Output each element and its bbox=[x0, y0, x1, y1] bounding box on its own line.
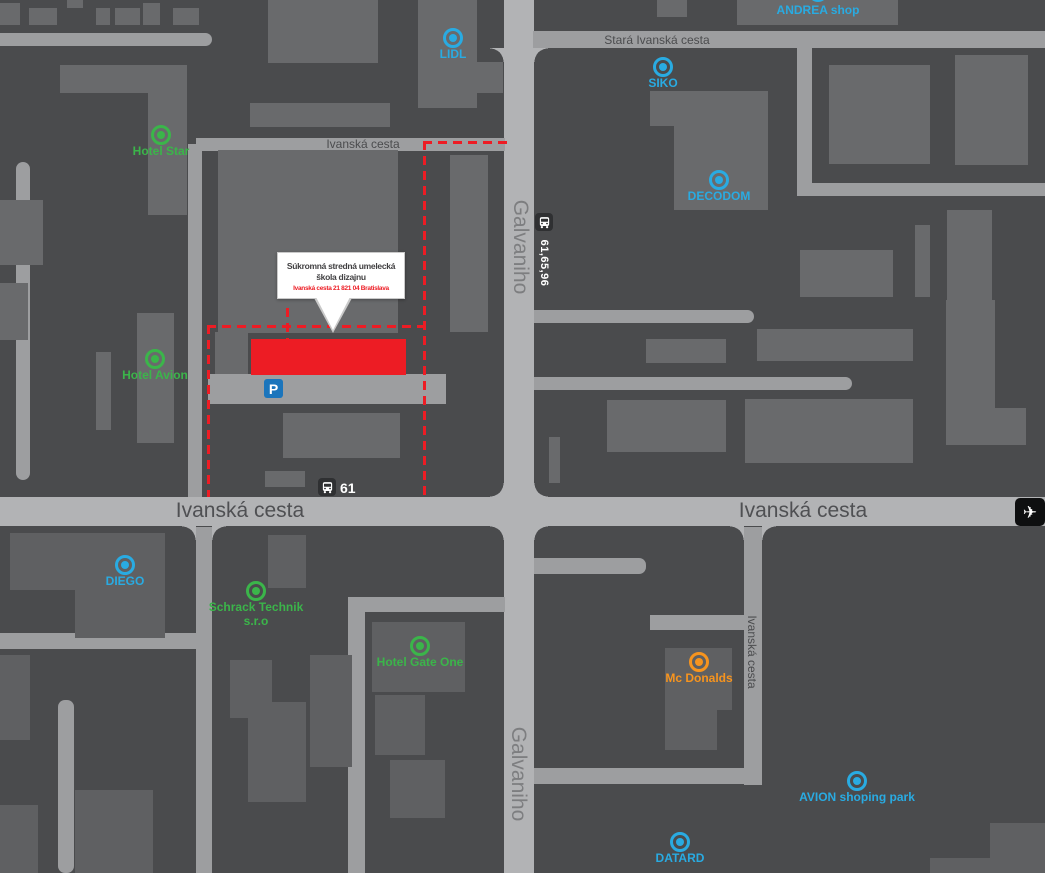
building bbox=[930, 858, 1010, 873]
road-label-ivanska-main-right: Ivanská cesta bbox=[739, 499, 867, 523]
building bbox=[800, 250, 893, 297]
building bbox=[75, 590, 165, 638]
corner-fillet bbox=[730, 526, 744, 540]
road-se-top bbox=[534, 558, 646, 574]
road-label-ivanska-main-left: Ivanská cesta bbox=[176, 499, 304, 523]
building bbox=[946, 300, 995, 445]
bus-icon bbox=[321, 481, 334, 494]
corner-fillet bbox=[490, 48, 504, 62]
building bbox=[657, 0, 687, 17]
road-school-west bbox=[188, 144, 202, 497]
building bbox=[757, 329, 913, 361]
map-canvas: Ivanská cesta Ivanská cesta Ivanská cest… bbox=[0, 0, 1045, 873]
building-schrack bbox=[268, 535, 306, 588]
school-area-boundary bbox=[423, 141, 426, 497]
building bbox=[947, 210, 992, 300]
building bbox=[283, 413, 400, 458]
road-label-galvaniho-bottom: Galvaniho bbox=[506, 727, 530, 822]
road-ne-horizontal bbox=[797, 183, 1045, 196]
building bbox=[75, 790, 153, 873]
building bbox=[646, 339, 726, 363]
school-area-boundary bbox=[207, 325, 210, 497]
map-pin-icon[interactable] bbox=[847, 771, 867, 791]
map-pin-icon[interactable] bbox=[145, 349, 165, 369]
poi-label: DIEGO bbox=[106, 574, 145, 588]
building bbox=[0, 200, 43, 265]
building-school-block bbox=[218, 150, 398, 333]
building bbox=[0, 283, 28, 340]
road-label-ivanska-side: Ivanská cesta bbox=[745, 615, 759, 688]
poi-label: ANDREA shop bbox=[777, 3, 860, 17]
map-pin-icon[interactable] bbox=[443, 28, 463, 48]
building bbox=[96, 352, 111, 430]
building bbox=[477, 62, 503, 93]
school-building-highlight bbox=[251, 339, 406, 375]
bus-stop-icon bbox=[535, 213, 553, 231]
road-sw-lane bbox=[58, 700, 74, 873]
building bbox=[215, 332, 248, 374]
poi-label: Mc Donalds bbox=[665, 671, 732, 685]
bus-stop-icon bbox=[318, 478, 336, 496]
road-east-stub-1 bbox=[534, 310, 754, 323]
school-name: Súkromná stredná umelecká škola dizajnu bbox=[281, 261, 401, 283]
corner-fillet bbox=[762, 526, 776, 540]
poi-label: Schrack Technik bbox=[209, 600, 304, 614]
bus-routes-label: 61,65,96 bbox=[538, 240, 550, 287]
building bbox=[665, 710, 717, 750]
building bbox=[29, 8, 57, 25]
building bbox=[173, 8, 199, 25]
building bbox=[265, 471, 305, 487]
school-area-boundary bbox=[423, 141, 507, 144]
building bbox=[390, 760, 445, 818]
building bbox=[450, 155, 488, 332]
poi-label: LIDL bbox=[440, 47, 467, 61]
poi-label: Hotel Avion bbox=[122, 368, 188, 382]
map-pin-icon[interactable] bbox=[653, 57, 673, 77]
poi-label-line2: s.r.o bbox=[244, 614, 269, 628]
airport-direction-icon: ✈ bbox=[1015, 498, 1045, 526]
building bbox=[96, 8, 110, 25]
building bbox=[248, 702, 306, 802]
road-sw-vertical bbox=[196, 527, 212, 873]
parking-icon: P bbox=[264, 379, 283, 398]
road-label-ivanska-top: Ivanská cesta bbox=[326, 137, 399, 151]
corner-fillet bbox=[182, 526, 196, 540]
building bbox=[268, 0, 378, 63]
building bbox=[607, 400, 726, 452]
corner-fillet bbox=[212, 526, 226, 540]
building bbox=[375, 695, 425, 755]
map-pin-icon[interactable] bbox=[670, 832, 690, 852]
building bbox=[310, 655, 352, 767]
building bbox=[250, 103, 390, 127]
map-pin-icon[interactable] bbox=[246, 581, 266, 601]
map-pin-icon[interactable] bbox=[115, 555, 135, 575]
poi-label: AVION shoping park bbox=[799, 790, 915, 804]
school-area-boundary bbox=[286, 308, 289, 339]
bus-route-label: 61 bbox=[340, 480, 356, 496]
parking-letter: P bbox=[269, 382, 278, 396]
road-se-bottom bbox=[534, 768, 762, 784]
road-top-left bbox=[0, 33, 212, 46]
building bbox=[995, 408, 1026, 445]
road-schrack-horizontal bbox=[348, 597, 505, 612]
road-label-stara-ivanska: Stará Ivanská cesta bbox=[604, 33, 709, 47]
poi-label: Hotel Star bbox=[133, 144, 190, 158]
poi-label: SIKO bbox=[648, 76, 677, 90]
building bbox=[0, 655, 30, 740]
corner-fillet bbox=[534, 48, 548, 62]
poi-label: DATARD bbox=[656, 851, 705, 865]
building bbox=[0, 3, 20, 25]
building bbox=[143, 3, 160, 25]
building bbox=[115, 8, 140, 25]
map-pin-icon[interactable] bbox=[689, 652, 709, 672]
map-pin-icon[interactable] bbox=[151, 125, 171, 145]
corner-fillet bbox=[490, 526, 504, 540]
building bbox=[915, 225, 930, 297]
road-mcdonalds-south bbox=[650, 615, 745, 630]
poi-label: DECODOM bbox=[688, 189, 751, 203]
road-east-stub-2 bbox=[534, 377, 852, 390]
building bbox=[67, 0, 83, 8]
road-ne-vertical bbox=[797, 44, 812, 196]
callout-pointer bbox=[316, 297, 350, 330]
corner-fillet bbox=[534, 483, 548, 497]
bus-icon bbox=[538, 216, 551, 229]
airplane-icon: ✈ bbox=[1023, 504, 1037, 521]
school-address: Ivanská cesta 21 821 04 Bratislava bbox=[281, 285, 401, 292]
map-pin-icon[interactable] bbox=[410, 636, 430, 656]
poi-label: Hotel Gate One bbox=[377, 655, 464, 669]
road-label-galvaniho-top: Galvaniho bbox=[508, 200, 532, 295]
building bbox=[549, 437, 560, 483]
building bbox=[0, 805, 38, 873]
building bbox=[650, 91, 674, 126]
building bbox=[955, 55, 1028, 165]
corner-fillet bbox=[534, 526, 548, 540]
corner-fillet bbox=[490, 483, 504, 497]
building bbox=[829, 65, 930, 164]
building bbox=[745, 399, 913, 463]
school-callout: Súkromná stredná umelecká škola dizajnu … bbox=[277, 252, 405, 299]
map-pin-icon[interactable] bbox=[709, 170, 729, 190]
parking-lot bbox=[208, 374, 446, 404]
